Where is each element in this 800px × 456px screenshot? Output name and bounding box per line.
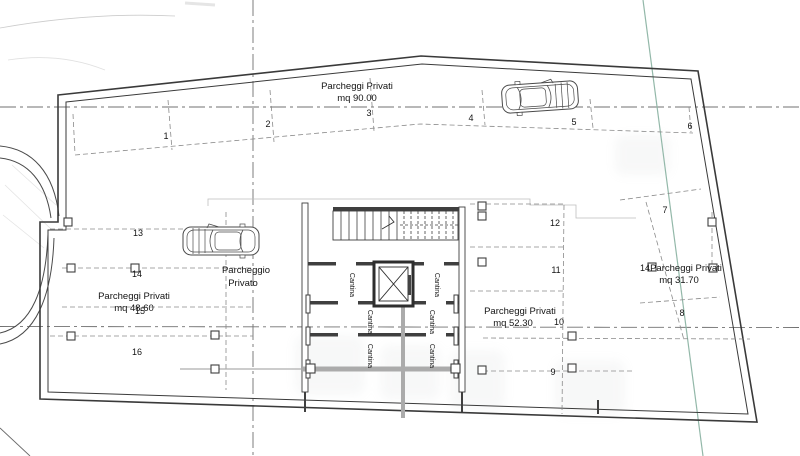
area-label-private-2: Privato [228,278,258,289]
floor-plan-canvas: 1 2 3 4 5 6 7 8 9 10 11 12 13 14 15 16 P… [0,0,800,456]
area-label-right-prefix: 14 [640,263,650,273]
spot-number-8: 8 [679,308,684,318]
elevator-tag [409,275,412,295]
ramp-arcs [0,146,59,344]
spot-number-5: 5 [571,117,576,127]
spot-number-11: 11 [551,265,560,275]
area-label-right-2: mq 31.70 [659,275,699,286]
cellar-label: Cantina [428,310,435,334]
spot-number-13: 13 [133,228,143,238]
cellar-label: Cantina [433,273,440,297]
area-label-top-1: Parcheggi Privati [321,81,393,92]
spot-number-10: 10 [554,317,564,327]
stair-direction-arrow [382,216,394,229]
cellar-label: Cantina [348,273,355,297]
spot-number-6: 6 [687,121,692,131]
spot-number-3: 3 [366,108,371,118]
elevator-shaft [374,262,413,306]
spot-number-9: 9 [550,367,555,377]
area-label-center-2: mq 52.30 [493,318,533,329]
spot-number-12: 12 [550,218,560,228]
floor-plan-drawing: 1 2 3 4 5 6 7 8 9 10 11 12 13 14 15 16 P… [0,0,800,456]
area-label-top-2: mq 90.00 [337,93,377,104]
car-icon [501,77,579,116]
site-boundary-fragment [0,428,30,456]
spot-number-2: 2 [265,119,270,129]
car-icon [183,224,259,258]
cellar-label: Cantina [366,344,373,368]
staircase [333,207,462,240]
area-label-left-1: Parcheggi Privati [98,291,170,302]
area-label-center-1: Parcheggi Privati [484,306,556,317]
spot-number-1: 1 [163,131,168,141]
spot-number-4: 4 [468,113,473,123]
spot-number-14: 14 [132,269,142,279]
cellar-label: Cantina [428,344,435,368]
area-label-left-2: mq 48.60 [114,303,154,314]
faint-terrain-lines [0,3,215,248]
spot-number-16: 16 [132,347,142,357]
cellar-label: Cantina [366,310,373,334]
spot-number-7: 7 [662,205,667,215]
area-label-private-1: Parcheggio [222,265,270,276]
area-label-right-1: Parcheggi Privati [650,263,722,274]
